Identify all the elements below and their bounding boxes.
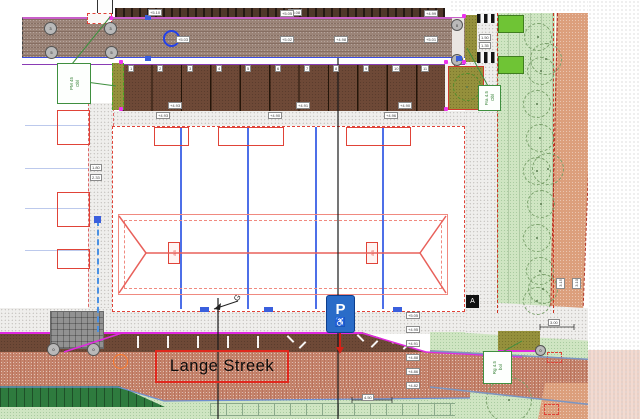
stall-marking: [137, 336, 139, 348]
dimension-chip: 3.00: [548, 319, 560, 326]
manhole-icon: 0: [47, 343, 60, 356]
steps-marking: [477, 52, 497, 63]
margin-top: [450, 0, 588, 13]
stall-number-chip: 9: [363, 65, 369, 72]
street-name-label: Lange Streek: [170, 357, 274, 376]
planting-sliver-right: [465, 15, 477, 62]
parking-sign-letter: P: [335, 302, 345, 317]
plant-label-text: Obl: [490, 94, 495, 101]
dimension-chip: 3.10: [572, 278, 581, 289]
plant-label-text: PM 45: [69, 77, 74, 90]
parcel-line: [25, 168, 88, 169]
level-chip: +5.02: [280, 36, 294, 43]
neighbour-footprint: [57, 249, 90, 269]
plant-label: PM 45 Obl: [57, 63, 91, 104]
level-chip: +4.91: [296, 102, 310, 109]
dimension-chip: 1.80: [90, 164, 102, 171]
dimension-chip-text: 3.15: [558, 279, 563, 287]
neighbour-footprint: [57, 110, 90, 145]
stall-number-chip: 1: [128, 65, 134, 72]
stall-number-chip: 3: [187, 65, 193, 72]
ridge-label: 8.5: [168, 242, 180, 264]
manhole-icon: 5: [45, 46, 58, 59]
level-chip: +4.82: [406, 382, 420, 389]
manhole-number: 0: [456, 23, 458, 28]
section-marker-a-label: A: [470, 298, 475, 305]
stall-number-chip: 7: [304, 65, 310, 72]
level-chip: +4.93: [168, 102, 182, 109]
blue-dashed-utility-line: [97, 220, 99, 332]
plant-label-text: Obl: [75, 80, 80, 87]
plant-label: Fra 4.5 Obl: [478, 85, 501, 111]
manhole-number: 3: [109, 26, 111, 31]
top-footpath: [97, 0, 113, 14]
plot-edge-marker: [264, 307, 273, 312]
plant-label-text: Fra 4.5: [484, 91, 489, 105]
margin-right: [588, 0, 640, 419]
level-chip: +5.05: [280, 10, 294, 17]
tree-icon: [532, 153, 564, 185]
ridge-label-text: 8.5: [370, 250, 375, 256]
boundary-dot: [444, 107, 448, 111]
entrance-box: [346, 127, 411, 146]
dimension-chip: 4.50: [362, 394, 374, 401]
level-chip: +4.99: [424, 10, 438, 17]
stall-marking: [167, 336, 169, 348]
hedge-block: [498, 15, 524, 33]
stall-number-chip: 8: [333, 65, 339, 72]
margin-road-tint: [588, 350, 640, 419]
dimension-chip: 3.15: [556, 278, 565, 289]
accessible-parking-sign: P ♿: [326, 295, 355, 333]
manhole-icon: 3: [104, 22, 117, 35]
level-chip: +4.90: [268, 112, 282, 119]
tree-icon: [530, 43, 562, 75]
plant-label: Rg 4.5 bol: [483, 351, 512, 384]
steps-marking: [477, 14, 497, 23]
sidewalk-left: [88, 103, 114, 332]
level-chip: +4.90: [398, 102, 412, 109]
dimension-chip: 2.33: [90, 174, 102, 181]
marker-rect-dashed: [544, 404, 559, 415]
manhole-number: 5: [110, 50, 112, 55]
tree-icon: [528, 274, 558, 304]
level-chip: +5.03: [176, 36, 190, 43]
tree-icon: [453, 73, 481, 101]
plot-edge-marker: [393, 307, 402, 312]
dimension-chip: 1.35: [479, 42, 491, 49]
tree-icon: [523, 90, 551, 118]
planting-sliver-left: [112, 63, 124, 110]
dimension-chip-text: 3.10: [574, 279, 579, 287]
tree-icon: [527, 190, 555, 218]
planter-strip-bottom: [498, 331, 540, 352]
dimension-chip: 1.50: [479, 34, 491, 41]
manhole-icon: 0: [451, 19, 463, 31]
neighbour-footprint: [57, 192, 90, 227]
street-name-box: Lange Streek: [155, 350, 289, 383]
stall-number-chip: 10: [392, 65, 400, 72]
level-chip: +5.01: [424, 36, 438, 43]
hedge-block: [498, 56, 524, 74]
level-chip: +4.86: [406, 368, 420, 375]
stall-marking: [227, 336, 229, 348]
boundary-dot: [109, 16, 113, 20]
stall-number-chip: 6: [275, 65, 281, 72]
level-chip: +4.96: [384, 112, 398, 119]
plot-edge-marker: [200, 307, 209, 312]
stall-marking: [197, 336, 199, 348]
site-plan-canvas: 3 3 5 5 0 0 1 2 3 4 5 6 7 8 9 10 11 8.5 …: [0, 0, 640, 419]
level-chip: +4.93: [156, 112, 170, 119]
plant-label-text: bol: [498, 364, 503, 370]
ridge-label-text: 8.5: [172, 250, 177, 256]
manhole-icon: 0: [87, 343, 100, 356]
level-chip: +4.88: [406, 354, 420, 361]
stall-number-chip: 2: [157, 65, 163, 72]
ridge-label: 8.5: [366, 242, 378, 264]
stall-marking: [257, 336, 259, 348]
plant-label-text: Rg 4.5: [492, 361, 497, 374]
level-chip: +4.91: [406, 340, 420, 347]
manhole-number: 5: [50, 50, 52, 55]
level-chip: +4.95: [406, 326, 420, 333]
boundary-dot: [462, 60, 466, 64]
manhole-number: 3: [49, 26, 51, 31]
level-chip: +4.98: [334, 36, 348, 43]
stall-number-chip: 5: [245, 65, 251, 72]
boundary-dot: [119, 107, 123, 111]
manhole-number: 0: [52, 347, 54, 352]
verge-border-left: [497, 13, 498, 313]
level-chip: +5.10: [148, 9, 162, 16]
manhole-number: 0: [92, 347, 94, 352]
wheelchair-icon: ♿: [335, 317, 346, 327]
tree-icon: [523, 224, 551, 252]
stall-number-chip: 11: [421, 65, 429, 72]
paving-row: [210, 403, 455, 416]
stall-number-chip: 4: [216, 65, 222, 72]
tree-icon: [526, 124, 554, 152]
entrance-box: [154, 127, 189, 146]
boundary-dot: [444, 60, 448, 64]
section-marker-a: A: [466, 295, 479, 308]
boundary-dot: [462, 14, 466, 18]
utility-node: [94, 216, 101, 223]
manhole-number: 0: [539, 348, 541, 353]
entrance-box: [218, 127, 284, 146]
marker-rect-dashed: [547, 352, 562, 363]
manhole-icon: 5: [105, 46, 118, 59]
manhole-icon: 3: [44, 22, 57, 35]
boundary-dot: [119, 60, 123, 64]
manhole-icon: 0: [535, 345, 546, 356]
level-chip: +5.05: [406, 312, 420, 319]
street-edge-marker: [145, 56, 151, 61]
survey-circle: [113, 354, 128, 369]
